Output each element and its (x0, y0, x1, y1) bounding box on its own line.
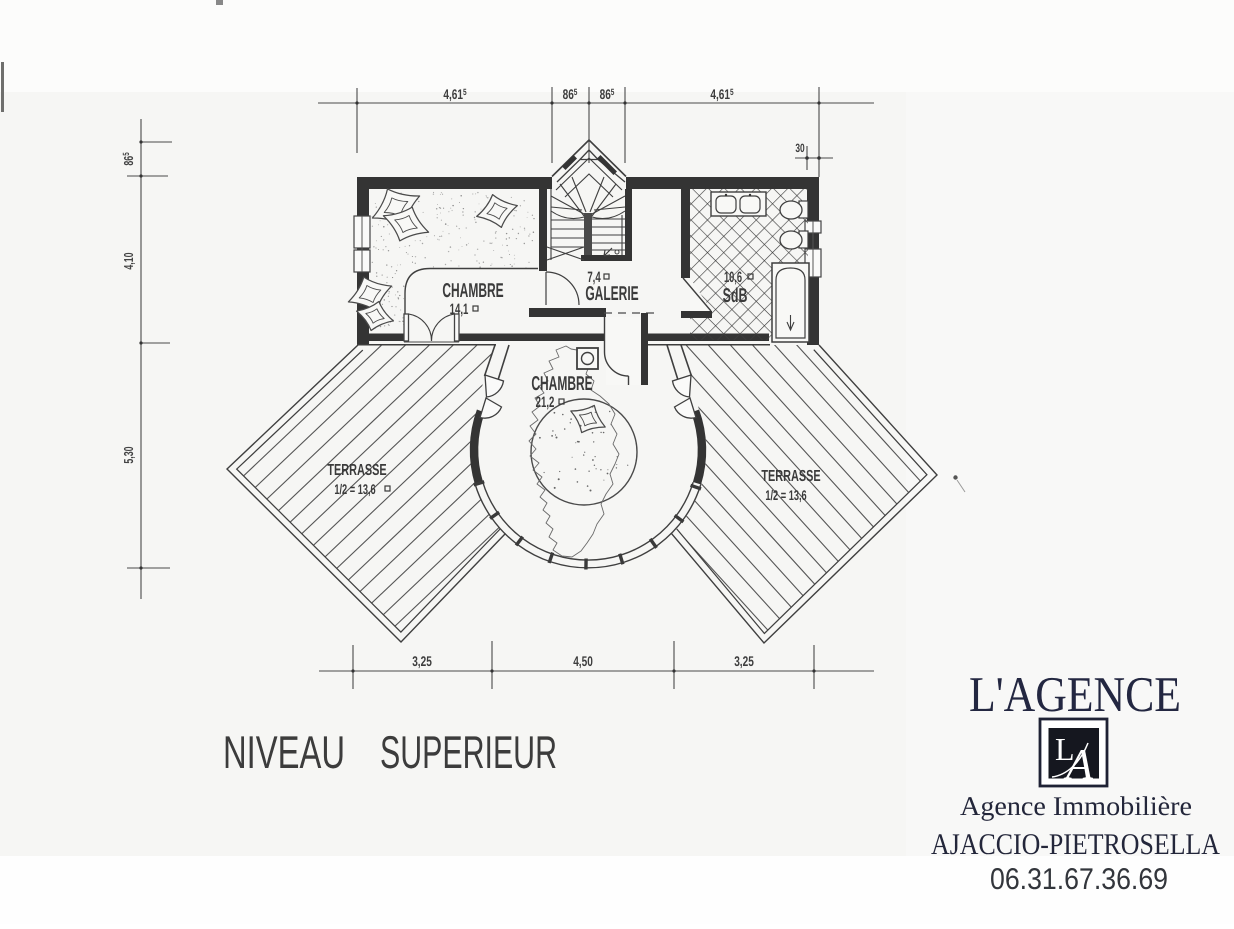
svg-text:SdB: SdB (723, 285, 748, 307)
svg-text:AJACCIO-PIETROSELLA: AJACCIO-PIETROSELLA (931, 828, 1220, 861)
svg-text:L'AGENCE: L'AGENCE (969, 666, 1181, 722)
svg-text:GALERIE: GALERIE (585, 283, 638, 305)
svg-text:CHAMBRE: CHAMBRE (531, 373, 592, 395)
svg-text:5,30: 5,30 (121, 446, 136, 463)
svg-text:1/2 = 13,6: 1/2 = 13,6 (334, 481, 376, 497)
svg-text:06.31.67.36.69: 06.31.67.36.69 (990, 863, 1168, 896)
svg-text:3,25: 3,25 (734, 653, 754, 669)
svg-text:CHAMBRE: CHAMBRE (442, 280, 503, 302)
svg-text:A: A (1063, 740, 1094, 789)
svg-text:4,50: 4,50 (573, 653, 593, 669)
svg-text:1/2 = 13,6: 1/2 = 13,6 (765, 487, 807, 503)
svg-text:SUPERIEUR: SUPERIEUR (380, 726, 557, 778)
svg-text:21,2: 21,2 (536, 394, 555, 411)
svg-text:30: 30 (795, 141, 805, 155)
svg-text:TERRASSE: TERRASSE (761, 468, 820, 485)
svg-text:TERRASSE: TERRASSE (327, 462, 386, 479)
svg-text:Agence Immobilière: Agence Immobilière (960, 791, 1192, 821)
svg-text:3,25: 3,25 (412, 653, 432, 669)
svg-text:NIVEAU: NIVEAU (223, 726, 345, 778)
svg-text:4,10: 4,10 (121, 252, 136, 269)
svg-text:10,6: 10,6 (724, 269, 742, 286)
